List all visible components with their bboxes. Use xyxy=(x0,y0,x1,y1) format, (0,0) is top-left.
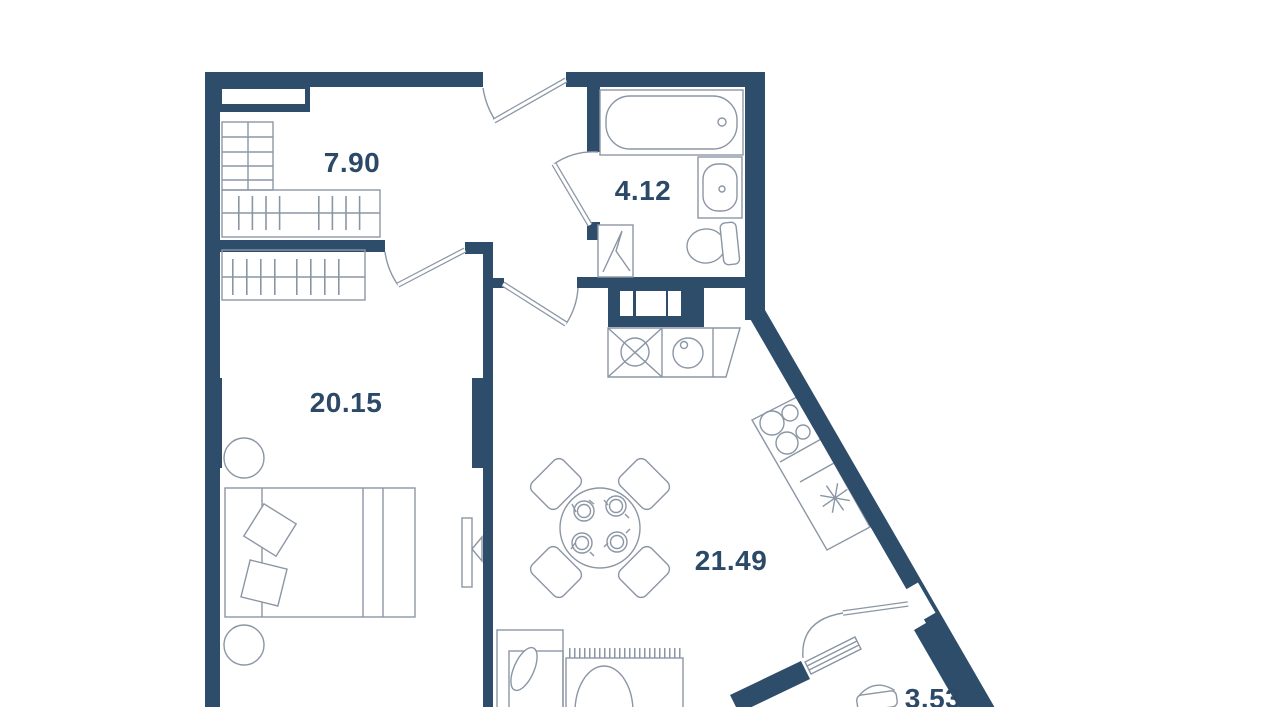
wardrobe-tall xyxy=(222,122,273,190)
room-label-hallway: 7.90 xyxy=(324,147,381,179)
dining-set xyxy=(528,456,673,601)
bedroom-door xyxy=(385,250,465,285)
plan-linework xyxy=(0,0,1280,707)
armchair xyxy=(497,630,563,707)
room-label-bedroom: 20.15 xyxy=(310,387,383,419)
room-label-kitchen-living: 21.49 xyxy=(695,545,768,577)
room-label-bathroom: 4.12 xyxy=(615,175,672,207)
dining-table xyxy=(560,488,640,568)
door-swing-arc xyxy=(483,88,495,120)
bathroom-door xyxy=(554,152,598,225)
wall-frame-notch xyxy=(877,471,895,490)
nightstand-top xyxy=(224,438,264,478)
nightstand-bottom xyxy=(224,625,264,665)
balcony-chair xyxy=(855,683,898,707)
wardrobe-hallway xyxy=(222,190,380,237)
pillow xyxy=(241,560,287,606)
entrance-door xyxy=(483,80,566,121)
floor-plan: 7.90 4.12 20.15 21.49 3.53 xyxy=(0,0,1280,707)
door-swing-arc xyxy=(554,152,598,164)
balcony-window xyxy=(805,637,861,674)
living-room-door xyxy=(503,284,578,324)
bathtub xyxy=(600,90,743,155)
toilet xyxy=(685,222,740,269)
tv xyxy=(462,518,482,587)
room-label-balcony: 3.53 xyxy=(905,683,962,707)
door-swing-arc xyxy=(566,288,578,324)
rug xyxy=(566,653,683,707)
electrical-panel xyxy=(598,225,633,277)
bathroom-sink xyxy=(698,157,742,218)
bed xyxy=(225,488,415,617)
wall-balcony-lower xyxy=(730,661,810,707)
wardrobe-bedroom xyxy=(222,250,365,300)
coffee-table-oval xyxy=(575,666,633,707)
kitchen-counter-top xyxy=(608,328,740,377)
door-swing-arc xyxy=(385,252,398,285)
wall-diagonal-exterior xyxy=(745,310,1006,707)
